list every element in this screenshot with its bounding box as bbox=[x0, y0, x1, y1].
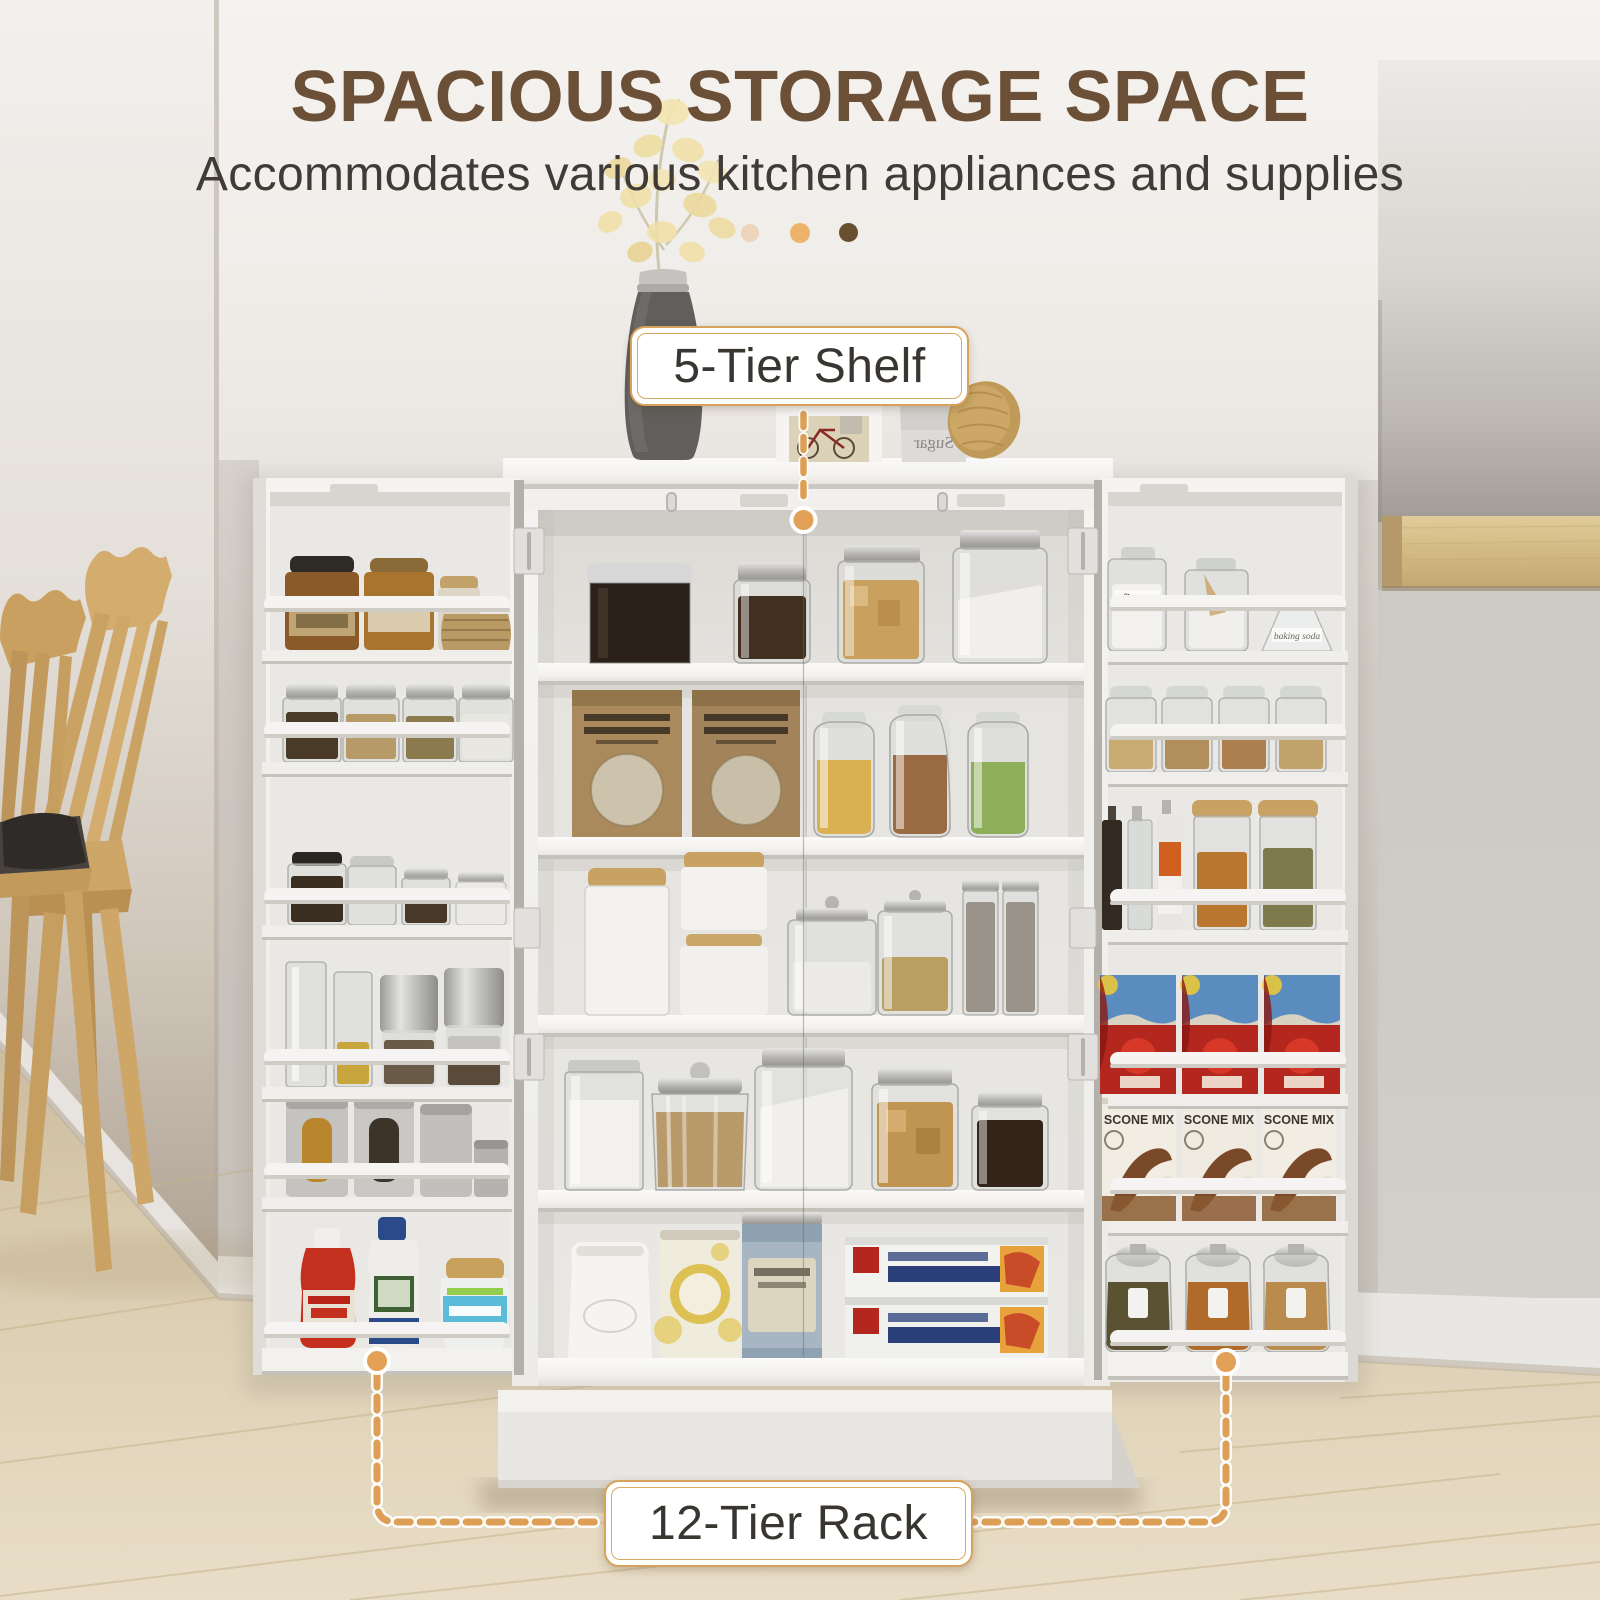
svg-text:SCONE MIX: SCONE MIX bbox=[1264, 1113, 1335, 1127]
svg-text:SCONE MIX: SCONE MIX bbox=[1104, 1113, 1175, 1127]
svg-text:SCONE MIX: SCONE MIX bbox=[1184, 1113, 1255, 1127]
svg-text:Sugar: Sugar bbox=[914, 433, 954, 452]
svg-text:baking soda: baking soda bbox=[1274, 632, 1320, 642]
